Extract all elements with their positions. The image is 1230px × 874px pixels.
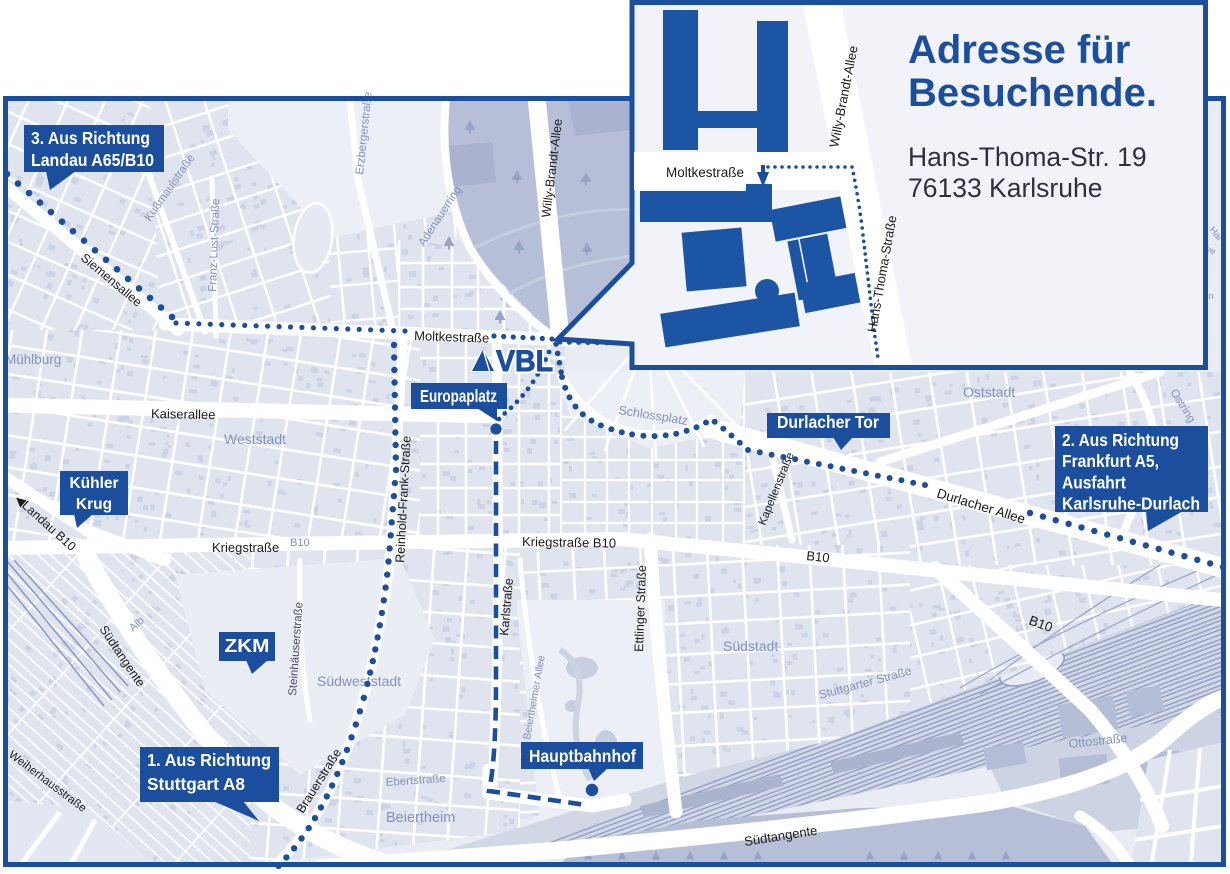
svg-text:Europaplatz: Europaplatz	[420, 386, 497, 406]
svg-text:B10: B10	[806, 548, 831, 565]
svg-text:Kaiserallee: Kaiserallee	[151, 406, 216, 422]
svg-text:Moltkestraße: Moltkestraße	[414, 328, 490, 346]
svg-text:Oststadt: Oststadt	[963, 384, 1015, 400]
svg-text:Mühlburg: Mühlburg	[5, 352, 61, 367]
svg-text:Kriegstraße B10: Kriegstraße B10	[522, 534, 616, 551]
svg-text:Beiertheim: Beiertheim	[386, 810, 455, 826]
svg-text:Kühler: Kühler	[69, 475, 118, 492]
svg-text:B10: B10	[290, 537, 310, 549]
svg-text:Besuchende.: Besuchende.	[908, 71, 1157, 115]
svg-text:1. Aus Richtung: 1. Aus Richtung	[147, 750, 271, 770]
svg-text:2. Aus Richtung: 2. Aus Richtung	[1062, 430, 1179, 450]
svg-text:Südweststadt: Südweststadt	[317, 673, 401, 689]
svg-text:Hans-Thoma-Str. 19: Hans-Thoma-Str. 19	[908, 142, 1147, 172]
svg-text:VBL: VBL	[496, 345, 553, 378]
svg-text:Frankfurt A5,: Frankfurt A5,	[1062, 451, 1159, 471]
svg-text:Hauptbahnhof: Hauptbahnhof	[529, 746, 636, 766]
svg-text:Krug: Krug	[76, 496, 112, 513]
svg-text:Moltkestraße: Moltkestraße	[666, 165, 744, 180]
svg-text:Ausfahrt: Ausfahrt	[1062, 472, 1126, 492]
svg-text:76133 Karlsruhe: 76133 Karlsruhe	[908, 173, 1102, 203]
svg-text:ZKM: ZKM	[225, 636, 270, 656]
svg-text:Südstadt: Südstadt	[723, 638, 778, 654]
svg-text:Landau A65/B10: Landau A65/B10	[31, 150, 154, 170]
svg-text:3. Aus Richtung: 3. Aus Richtung	[31, 128, 150, 148]
svg-text:Karlsruhe-Durlach: Karlsruhe-Durlach	[1062, 494, 1200, 514]
svg-text:Weststadt: Weststadt	[224, 431, 286, 447]
svg-text:Adresse für: Adresse für	[908, 28, 1130, 72]
svg-text:Durlacher Tor: Durlacher Tor	[777, 412, 879, 432]
svg-text:Kriegstraße: Kriegstraße	[212, 540, 279, 555]
svg-text:Stuttgart A8: Stuttgart A8	[147, 774, 245, 794]
